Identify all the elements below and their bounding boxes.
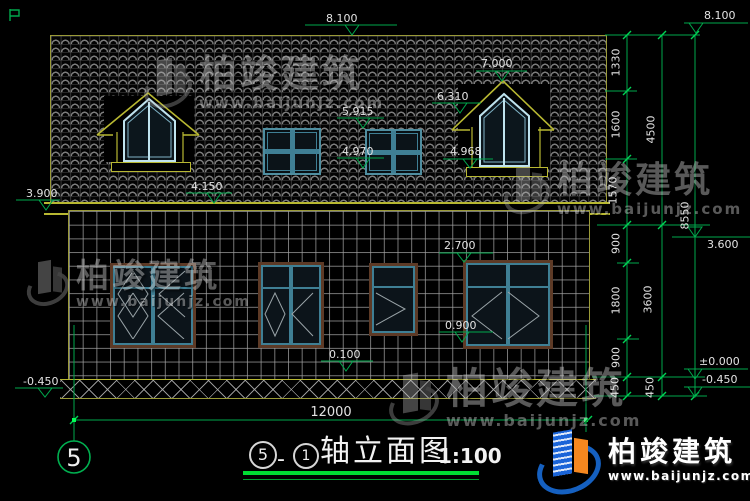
brand-name: 柏竣建筑 <box>608 438 750 466</box>
watermark: 柏竣建筑 www.baijunjz.com <box>143 55 384 111</box>
title-separator: - <box>277 449 285 471</box>
axis-bubble-number: 5 <box>58 444 90 472</box>
dim-3600: 3600 <box>642 270 655 330</box>
dim-1800: 1800 <box>610 271 623 331</box>
brand-logo-icon <box>536 427 600 493</box>
level-ridge-top: 8.100 <box>326 13 358 25</box>
level-floor2: 3.600 <box>707 239 739 251</box>
corner-mark <box>10 9 19 21</box>
watermark-logo-icon <box>388 370 440 428</box>
watermark-brand: 柏竣建筑 <box>76 259 251 292</box>
level-zero: ±0.000 <box>699 356 740 368</box>
watermark-brand: 柏竣建筑 <box>557 163 742 199</box>
level-ridge-right: 8.100 <box>704 10 736 22</box>
drawing-scale: 1:100 <box>438 446 502 466</box>
dim-1330: 1330 <box>610 33 623 93</box>
level-ground-right: -0.450 <box>702 374 737 386</box>
watermark: 柏竣建筑 www.baijunjz.com <box>503 163 742 217</box>
level-ground-left: -0.450 <box>23 376 58 388</box>
right-dormer-window <box>480 94 529 166</box>
title-underline-thin <box>243 479 479 480</box>
dim-endpoint <box>72 418 76 422</box>
watermark-url: www.baijunjz.com <box>557 202 742 217</box>
watermark: 柏竣建筑 www.baijunjz.com <box>26 258 251 310</box>
level-dormer-eave: 6.310 <box>437 91 469 103</box>
dim-450a: 450 <box>609 358 622 418</box>
title-axis-start-bubble: 5 <box>249 441 277 469</box>
level-eave-low: 3.900 <box>26 188 58 200</box>
brand-url: www.baijunjz.com <box>608 470 750 482</box>
dim-1600: 1600 <box>610 95 623 155</box>
watermark-url: www.baijunjz.com <box>76 295 251 309</box>
watermark-brand: 柏竣建筑 <box>199 55 384 93</box>
watermark: 柏竣建筑 www.baijunjz.com <box>388 368 641 429</box>
watermark-logo-icon <box>26 258 70 310</box>
title-axis-end-bubble: 1 <box>293 443 319 469</box>
level-roof-window-head: 5.915 <box>342 106 374 118</box>
level-porch: 0.100 <box>329 349 361 361</box>
brand-logo: 柏竣建筑 www.baijunjz.com <box>536 427 750 493</box>
dim-1570: 1570 <box>607 161 620 221</box>
dim-8550: 8550 <box>679 186 692 246</box>
watermark-logo-icon <box>503 163 551 217</box>
level-dormer-window-sill: 4.968 <box>450 146 482 158</box>
drawing-title: 轴立面图 <box>320 437 452 467</box>
dim-12000: 12000 <box>303 405 359 420</box>
dim-4500: 4500 <box>645 100 658 160</box>
dim-450b: 450 <box>644 358 657 418</box>
dim-900a: 900 <box>610 214 623 274</box>
level-roof-window-sill: 4.970 <box>342 146 374 158</box>
title-underline <box>243 471 479 475</box>
level-dormer-peak: 7.000 <box>481 58 513 70</box>
level-eave-high: 4.150 <box>191 181 223 193</box>
level-window-head: 2.700 <box>444 240 476 252</box>
watermark-logo-icon <box>143 55 193 111</box>
level-window-sill: 0.900 <box>445 320 477 332</box>
elevation-drawing-canvas: 柏竣建筑 www.baijunjz.com 柏竣建筑 www.baijunjz.… <box>0 0 750 501</box>
